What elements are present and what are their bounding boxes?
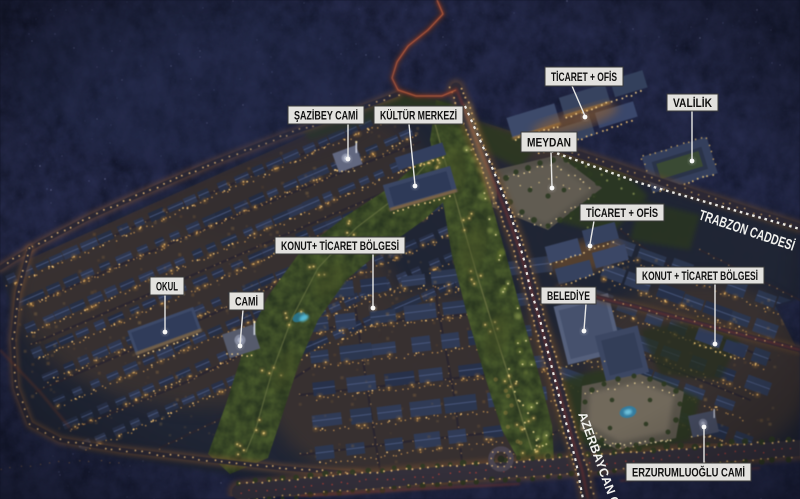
svg-text:MEYDAN: MEYDAN: [527, 135, 571, 149]
svg-text:KONUT + TİCARET BÖLGESİ: KONUT + TİCARET BÖLGESİ: [642, 268, 758, 283]
svg-text:VALİLİK: VALİLİK: [673, 95, 712, 110]
svg-text:BELEDİYE: BELEDİYE: [547, 288, 590, 303]
svg-text:CAMİ: CAMİ: [235, 293, 258, 308]
svg-text:TİCARET + OFİS: TİCARET + OFİS: [586, 205, 658, 220]
svg-text:KÜLTÜR MERKEZİ: KÜLTÜR MERKEZİ: [380, 107, 457, 122]
svg-text:OKUL: OKUL: [156, 279, 178, 293]
svg-text:ŞAZİBEY CAMİ: ŞAZİBEY CAMİ: [294, 107, 358, 122]
svg-text:ERZURUMLUOĞLU CAMİ: ERZURUMLUOĞLU CAMİ: [632, 464, 745, 479]
svg-text:KONUT+ TİCARET BÖLGESİ: KONUT+ TİCARET BÖLGESİ: [281, 238, 399, 253]
svg-text:TİCARET + OFİS: TİCARET + OFİS: [551, 69, 617, 84]
